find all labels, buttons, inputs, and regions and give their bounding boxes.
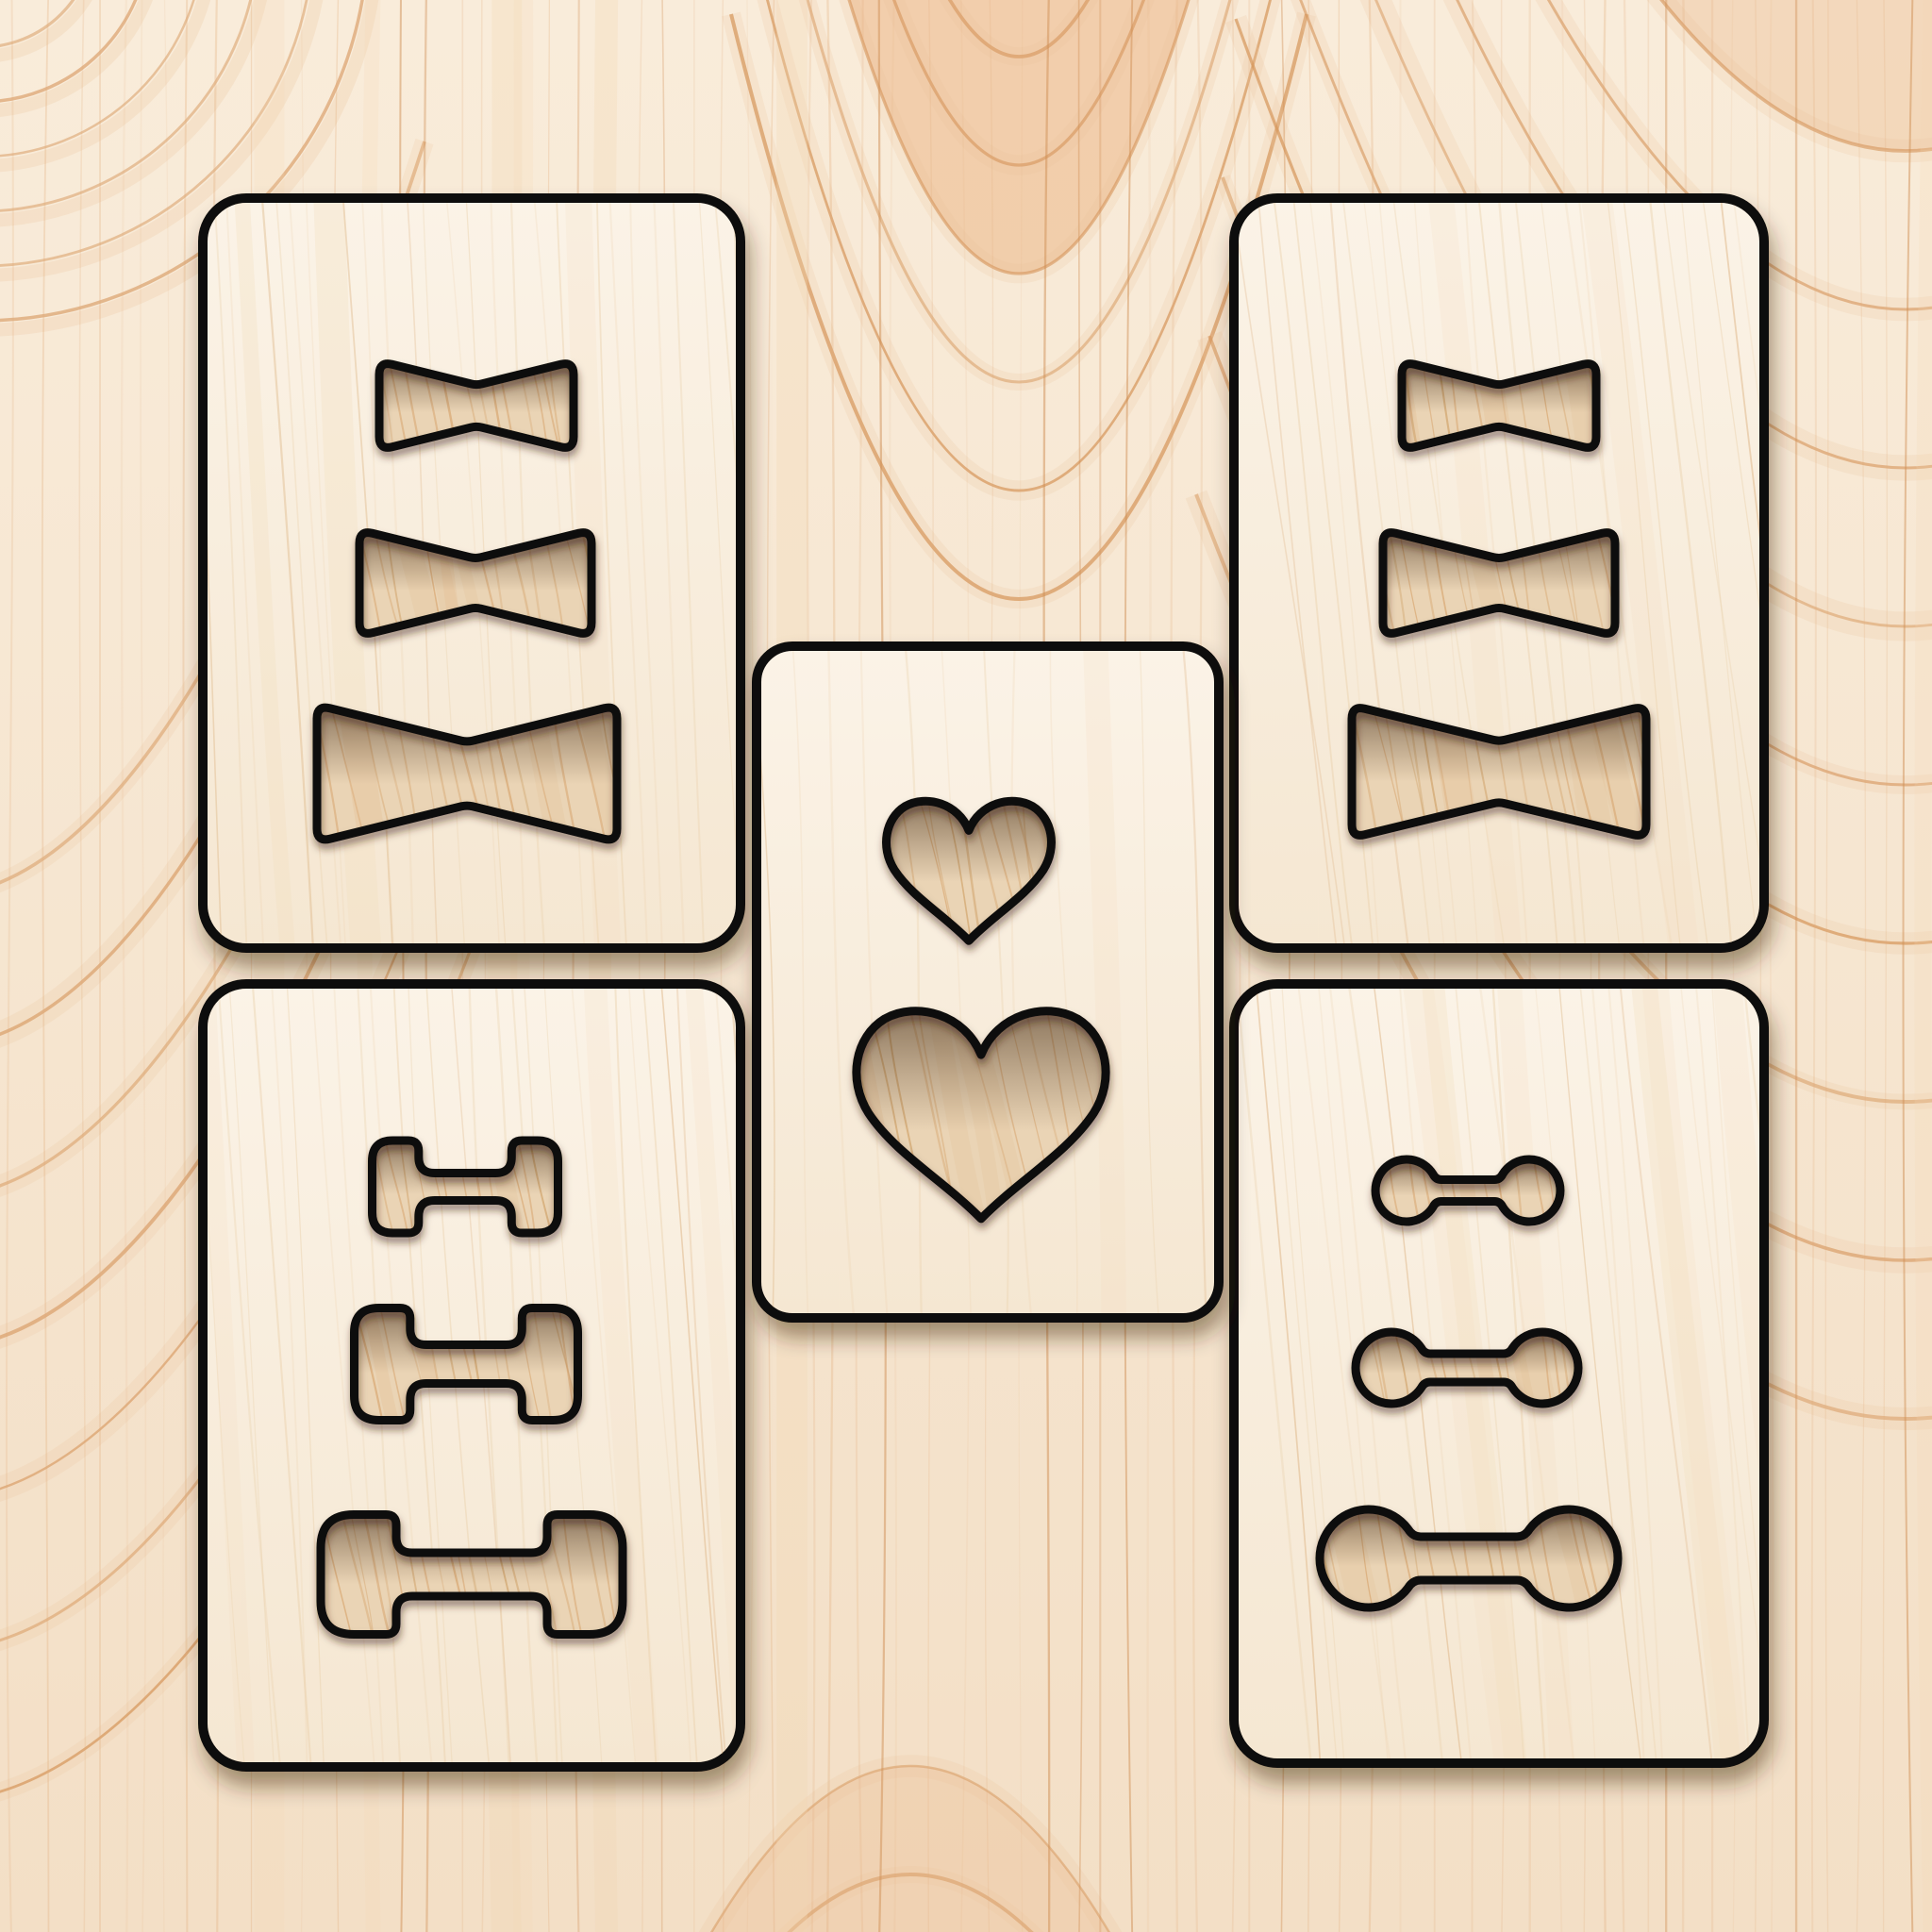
- scene-canvas: [0, 0, 1932, 1932]
- heart-template-board-center: [750, 632, 1253, 1332]
- bowtie-template-board-top-right: [1230, 184, 1847, 962]
- bowtie-template-board-top-left: [191, 184, 764, 962]
- dumbbell-template-board-bottom-right: [1234, 970, 1856, 1777]
- product-photo-wood-inlay-templates: Five laser-cut wooden inlay template boa…: [0, 0, 1932, 1932]
- bone-template-board-bottom-left: [192, 970, 789, 1781]
